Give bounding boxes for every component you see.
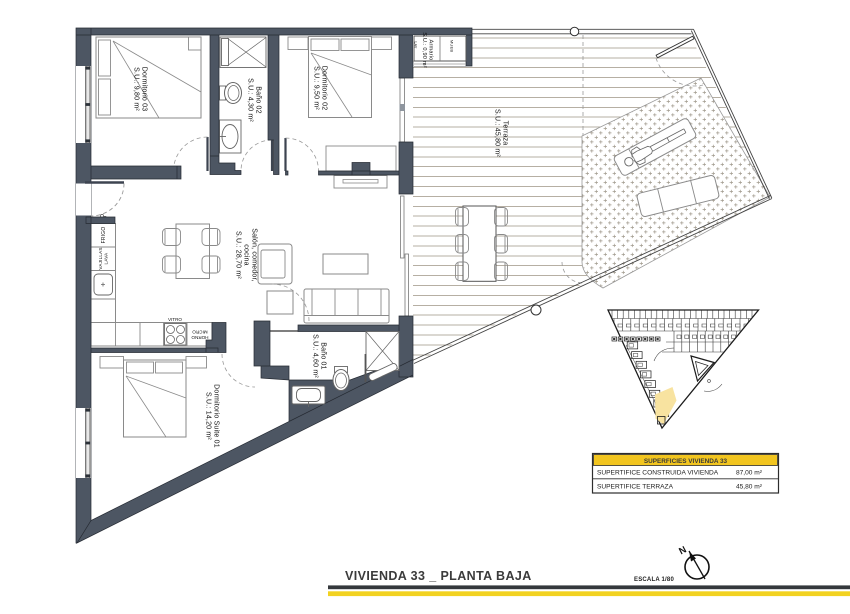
svg-text:87,00 m²: 87,00 m² — [736, 470, 763, 477]
svg-text:S.U.: 28,70 m²: S.U.: 28,70 m² — [235, 231, 242, 279]
svg-text:SUPERFICIES VIVIENDA 33: SUPERFICIES VIVIENDA 33 — [644, 458, 728, 465]
svg-text:VIVIENDA 33 _ PLANTA BAJA: VIVIENDA 33 _ PLANTA BAJA — [345, 569, 532, 583]
svg-text:Baño 01: Baño 01 — [320, 342, 327, 369]
svg-text:SUPERTIFICE CONSTRUIDA VIVIEND: SUPERTIFICE CONSTRUIDA VIVIENDA — [597, 470, 719, 477]
svg-text:LAVA: LAVA — [103, 252, 108, 265]
svg-text:S.U.: 4,60 m²: S.U.: 4,60 m² — [312, 334, 319, 378]
svg-text:Terraza: Terraza — [502, 121, 509, 146]
svg-text:Salón, comedor,: Salón, comedor, — [251, 228, 258, 282]
svg-text:SUPERTIFICE TERRAZA: SUPERTIFICE TERRAZA — [597, 484, 674, 491]
svg-text:VITRO: VITRO — [168, 317, 182, 322]
svg-text:Dormitorio 02: Dormitorio 02 — [321, 66, 328, 111]
svg-text:LAV: LAV — [413, 42, 417, 49]
svg-text:S.U.: 14,20 m²: S.U.: 14,20 m² — [205, 392, 212, 440]
svg-text:Armario: Armario — [427, 40, 433, 61]
svg-text:ESCALA 1/80: ESCALA 1/80 — [634, 577, 674, 583]
svg-text:HORNO: HORNO — [191, 335, 209, 340]
svg-text:Baño 02: Baño 02 — [255, 86, 262, 113]
svg-text:VAJILLAS: VAJILLAS — [98, 247, 103, 269]
svg-text:Dormitorio 03: Dormitorio 03 — [141, 67, 148, 112]
svg-text:S.U.: 9,50 m²: S.U.: 9,50 m² — [313, 66, 320, 110]
svg-text:FRIGO: FRIGO — [101, 227, 107, 244]
svg-text:MICRO: MICRO — [192, 329, 208, 334]
svg-text:S.U.: 9,80 m²: S.U.: 9,80 m² — [133, 67, 140, 111]
svg-text:S.U.: 4,30 m²: S.U.: 4,30 m² — [247, 78, 254, 122]
svg-text:Dormitorio Suite 01: Dormitorio Suite 01 — [213, 384, 220, 448]
svg-text:S.U.: 0,90 m²: S.U.: 0,90 m² — [421, 32, 427, 68]
svg-text:MUEB: MUEB — [450, 40, 455, 52]
svg-text:45,80 m²: 45,80 m² — [736, 484, 763, 491]
svg-text:S.U.: 45,80 m²: S.U.: 45,80 m² — [494, 109, 501, 157]
svg-text:cocina: cocina — [243, 244, 250, 265]
